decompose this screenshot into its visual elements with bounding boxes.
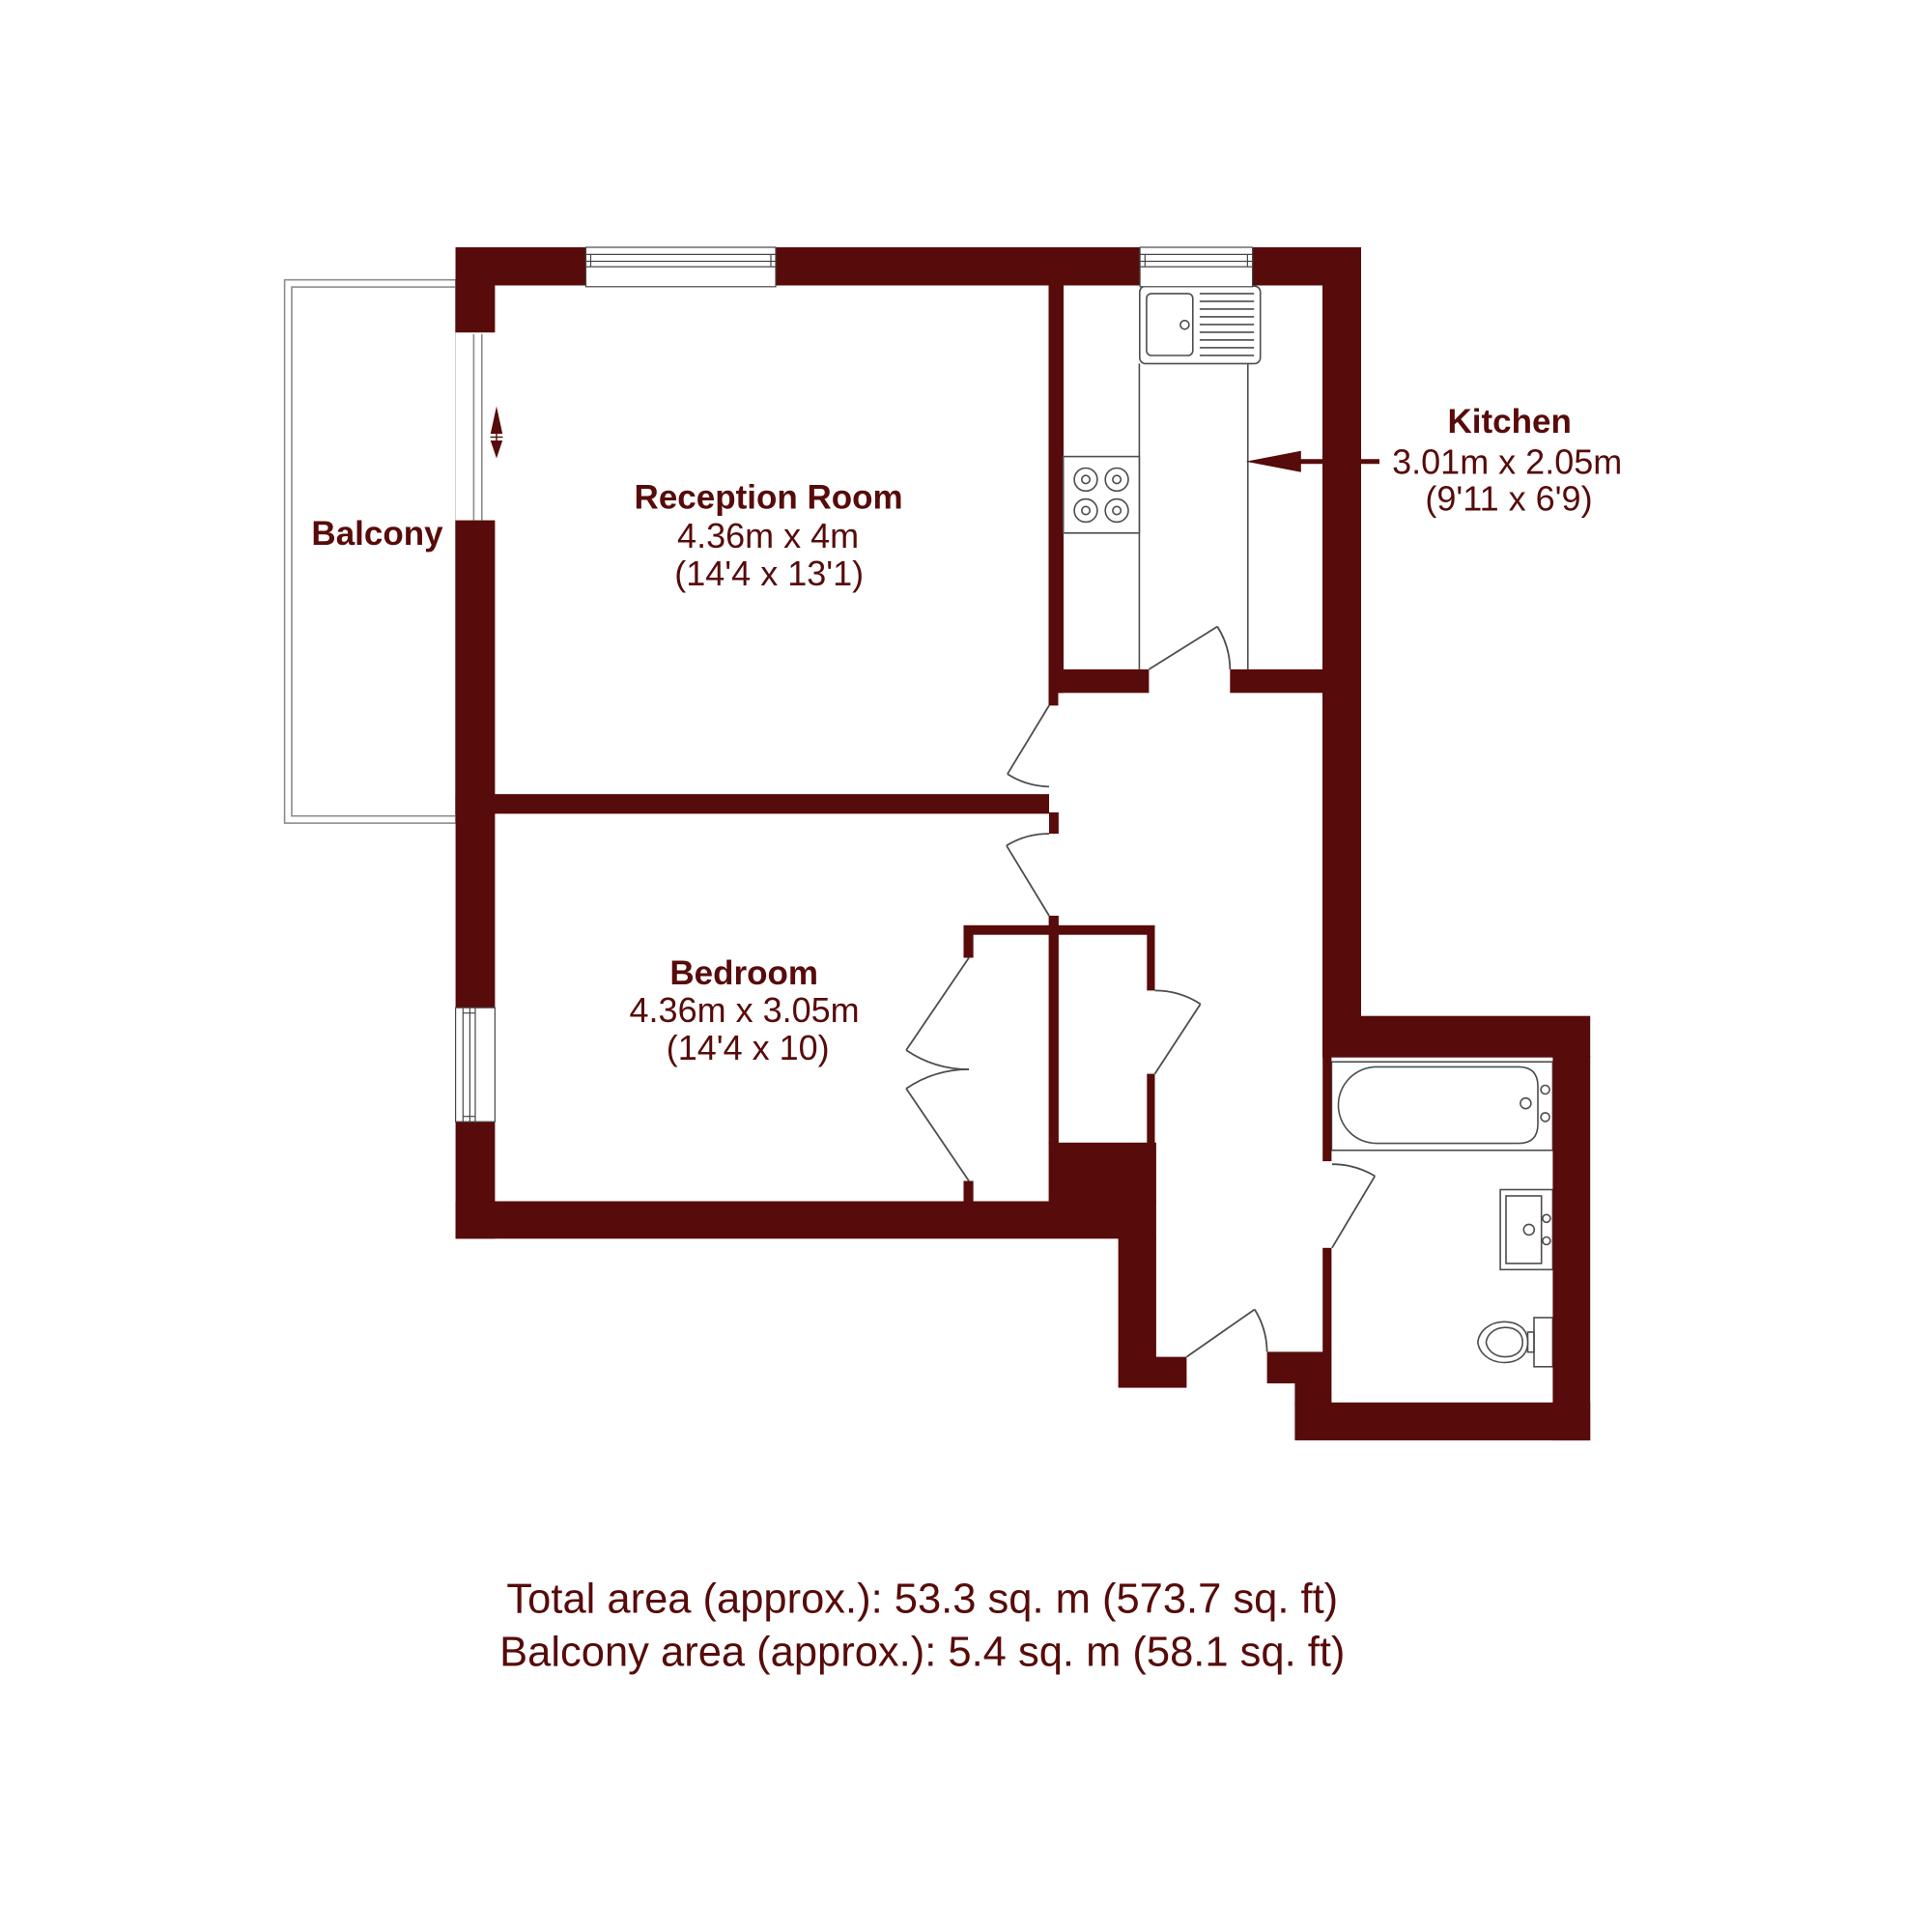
svg-text:(9'11 x 6'9): (9'11 x 6'9) (1425, 479, 1592, 519)
svg-text:Total area (approx.): 53.3 sq.: Total area (approx.): 53.3 sq. m (573.7 … (506, 1577, 1338, 1623)
svg-text:Bedroom: Bedroom (669, 954, 818, 992)
svg-text:(14'4 x 10): (14'4 x 10) (667, 1028, 830, 1067)
svg-text:4.36m x 4m: 4.36m x 4m (677, 516, 859, 555)
svg-text:3.01m x 2.05m: 3.01m x 2.05m (1392, 442, 1622, 482)
svg-text:Balcony area (approx.): 5.4 sq: Balcony area (approx.): 5.4 sq. m (58.1 … (499, 1630, 1345, 1676)
svg-text:Reception Room: Reception Room (635, 479, 903, 517)
svg-text:(14'4 x 13'1): (14'4 x 13'1) (674, 554, 864, 593)
svg-text:Kitchen: Kitchen (1448, 403, 1572, 440)
svg-text:Balcony: Balcony (311, 515, 443, 553)
svg-text:4.36m x 3.05m: 4.36m x 3.05m (630, 990, 860, 1030)
